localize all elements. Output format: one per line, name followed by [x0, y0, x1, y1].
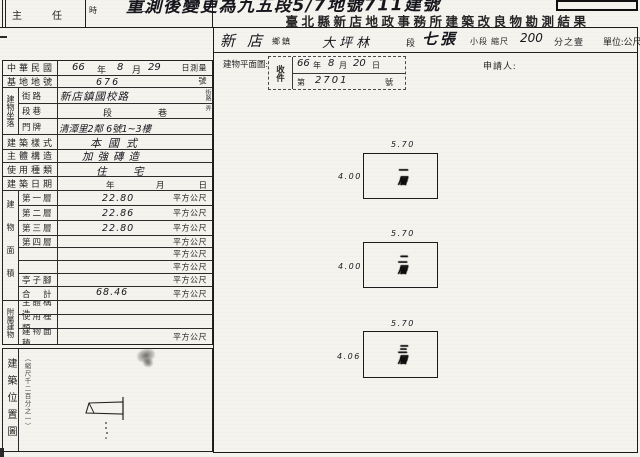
section-lane-row: 段巷 段 巷 弄 [19, 104, 212, 119]
floor3-area-value: 22.80 [102, 223, 134, 234]
receipt-month-unit: 月 [339, 60, 347, 71]
area-row-floor4: 第四層 平方公尺 [19, 236, 212, 249]
top-fragment-left-border-2 [5, 0, 6, 27]
floor1-area-value: 22.80 [102, 193, 134, 204]
build-date-label: 建築日期 [3, 177, 58, 190]
street-sublabel: 街路 [19, 88, 58, 103]
receipt-number-suffix: 號 [385, 77, 393, 88]
floor-plan-title: 建物平面圖: [223, 58, 268, 70]
day-survey-suffix: 日測量 [182, 62, 208, 73]
lot-number-row: 基地地號 676 號 [3, 76, 212, 89]
location-scale-row: 新店 鄉鎮 大坪林 段 七張 小段 縮尺 200 分之壹 單位:公尺 [214, 28, 637, 53]
area-row-arcade: 亭子腳 平方公尺 [19, 274, 212, 287]
site-map-scale-note: （縮尺千二百分之一） [21, 355, 31, 430]
year-unit: 年 [97, 63, 106, 76]
subsection-value: 七張 [422, 28, 458, 49]
building-style-row: 建築樣式 本國式 [3, 135, 212, 150]
lot-label: 基地地號 [3, 76, 58, 88]
top-fragment-left-border [2, 0, 3, 27]
township-label: 鄉鎮 [272, 36, 292, 47]
area-row-total: 合 計 68.46平方公尺 [19, 287, 212, 300]
site-map-canvas: （縮尺千二百分之一） [19, 349, 212, 451]
receipt-stamp-label: 收件 [269, 57, 293, 89]
floor3-sublabel: 第三層 [19, 221, 58, 235]
lane-mid-label: 巷 [158, 106, 167, 119]
build-date-year-unit: 年 [106, 179, 115, 191]
blank2-area-unit: 平方公尺 [173, 262, 207, 273]
arcade-sublabel: 亭子腳 [19, 274, 58, 286]
annex-group-label: 附屬建物 [3, 301, 19, 344]
floor3-area-unit: 平方公尺 [173, 222, 207, 233]
building-location-group: 建物坐落 街路 新店鎮國校路 街路 段巷 段 巷 弄 [3, 88, 212, 135]
floor3-left-dimension: 4.06 [337, 352, 361, 361]
street-row: 街路 新店鎮國校路 街路 [19, 88, 212, 104]
lot-number-suffix: 號 [199, 76, 208, 87]
street-value: 新店鎮國校路 [60, 89, 129, 104]
blank1-sublabel [19, 248, 58, 260]
usage-type-label: 使用種類 [3, 163, 58, 177]
receipt-number: 2701 [315, 75, 348, 86]
area-row-floor1: 第一層 22.80平方公尺 [19, 191, 212, 206]
total-area-value: 68.46 [96, 287, 128, 298]
section-value: 大坪林 [322, 32, 373, 51]
applicant-label: 申請人: [483, 59, 517, 72]
build-date-row: 建築日期 年 月 日 [3, 177, 212, 191]
floor1-plan-name: 一層 [394, 165, 408, 186]
annex-structure-sublabel: 主體構造 [19, 301, 58, 314]
floor2-left-dimension: 4.00 [338, 262, 362, 271]
main-structure-label: 主體構造 [3, 150, 58, 162]
scale-label: 縮尺 [491, 36, 509, 47]
build-date-day-unit: 日 [198, 179, 207, 191]
scan-artifact-dash [0, 36, 7, 38]
floor3-top-dimension: 5.70 [391, 319, 415, 328]
roc-label: 中華民國 [3, 61, 58, 75]
floor1-top-dimension: 5.70 [391, 140, 415, 149]
floor2-top-dimension: 5.70 [391, 229, 415, 238]
receipt-day: 20 [353, 58, 366, 69]
floor2-plan-name: 二層 [394, 254, 408, 275]
survey-date-row: 中華民國 66 年 8 月 29 日測量 [3, 61, 212, 76]
floor1-area-unit: 平方公尺 [173, 192, 207, 203]
receipt-year-unit: 年 [313, 60, 321, 71]
floor1-plan-rect: 一層 [363, 153, 438, 199]
floor1-left-dimension: 4.00 [338, 172, 362, 181]
annex-usage-row: 使用種類 [19, 315, 212, 329]
floor4-sublabel: 第四層 [19, 236, 58, 248]
total-sublabel: 合 計 [19, 287, 58, 300]
survey-year-value: 66 [72, 62, 85, 73]
month-unit: 月 [132, 63, 141, 76]
unit-label: 單位:公尺 [603, 35, 640, 48]
annex-area-sublabel: 建物面積 [19, 329, 58, 344]
door-plate-value: 清潭里2鄰 6號1~3樓 [59, 121, 151, 135]
floor4-area-unit: 平方公尺 [173, 236, 207, 247]
receipt-number-prefix: 第 [297, 77, 305, 88]
building-area-group: 建物面積 第一層 22.80平方公尺 第二層 22.86平方公尺 第三層 22.… [3, 191, 212, 301]
ink-smudge-2 [142, 357, 154, 368]
survey-day-value: 29 [148, 62, 161, 73]
survey-month-value: 8 [117, 62, 123, 73]
section-lane-sublabel: 段巷 [19, 104, 58, 118]
door-plate-sublabel: 門牌 [19, 119, 58, 135]
floor2-sublabel: 第二層 [19, 206, 58, 220]
alley-right-tiny-label: 弄 [204, 105, 210, 111]
top-fragment-divider [85, 0, 86, 27]
area-row-blank2: 平方公尺 [19, 261, 212, 274]
receipt-stamp-box: 收件 66 年 8 月 20 日 第 2701 號 [268, 56, 406, 90]
section-mid-label: 段 [103, 106, 112, 119]
floor-plan-panel: 新店 鄉鎮 大坪林 段 七張 小段 縮尺 200 分之壹 單位:公尺 建物平面圖… [213, 27, 638, 453]
parcel-sketch [79, 395, 149, 451]
survey-form-table: 中華民國 66 年 8 月 29 日測量 基地地號 676 號 建物坐落 街 [2, 60, 213, 345]
building-location-group-label: 建物坐落 [3, 88, 19, 134]
receipt-day-unit: 日 [372, 60, 380, 71]
area-row-floor3: 第三層 22.80平方公尺 [19, 221, 212, 236]
scale-suffix: 分之壹 [554, 35, 584, 48]
lot-number-value: 676 [96, 77, 120, 88]
floor3-plan-name: 三層 [394, 344, 408, 365]
subsection-label: 小段 [470, 36, 488, 47]
blank2-sublabel [19, 261, 58, 273]
site-map-label: 建築位置圖 [3, 349, 19, 451]
annex-structure-row: 主體構造 [19, 301, 212, 315]
floor2-area-value: 22.86 [102, 208, 134, 219]
usage-type-row: 使用種類 住 宅 [3, 163, 212, 178]
floor2-area-unit: 平方公尺 [173, 207, 207, 218]
door-plate-row: 門牌 清潭里2鄰 6號1~3樓 [19, 119, 212, 135]
scanned-survey-document: 主 任 時 — 重測後變更為九五段5/7地號711建號 臺北縣新店地政事務所建築… [0, 0, 640, 457]
section-label: 段 [406, 36, 415, 49]
township-value: 新店 [220, 30, 274, 51]
building-number-box [556, 0, 638, 11]
annex-area-row: 建物面積 平方公尺 [19, 329, 212, 344]
receipt-date-row: 66 年 8 月 20 日 [293, 57, 405, 74]
floor3-plan-rect: 三層 [363, 331, 438, 378]
street-right-tiny-label: 街路 [204, 89, 210, 101]
building-area-group-label: 建物面積 [3, 191, 19, 300]
scale-value: 200 [520, 31, 543, 45]
receipt-number-row: 第 2701 號 [293, 74, 405, 90]
main-structure-row: 主體構造 加強磚造 [3, 150, 212, 163]
build-date-month-unit: 月 [156, 179, 165, 191]
floor2-plan-rect: 二層 [363, 242, 438, 288]
annex-building-group: 附屬建物 主體構造 使用種類 建物面積 平方公尺 [3, 301, 212, 344]
site-location-map-box: 建築位置圖 （縮尺千二百分之一） [2, 348, 213, 452]
area-row-blank1: 平方公尺 [19, 248, 212, 261]
area-row-floor2: 第二層 22.86平方公尺 [19, 206, 212, 221]
receipt-year: 66 [297, 58, 310, 69]
supervisor-label: 主 任 [12, 7, 78, 22]
total-area-unit: 平方公尺 [173, 288, 207, 299]
time-label: 時 [89, 5, 97, 16]
floor1-sublabel: 第一層 [19, 191, 58, 205]
arcade-area-unit: 平方公尺 [173, 275, 207, 286]
blank1-area-unit: 平方公尺 [173, 249, 207, 260]
building-style-label: 建築樣式 [3, 135, 58, 149]
annex-area-unit: 平方公尺 [173, 331, 207, 342]
receipt-month: 8 [328, 58, 334, 69]
annex-usage-sublabel: 使用種類 [19, 315, 58, 328]
